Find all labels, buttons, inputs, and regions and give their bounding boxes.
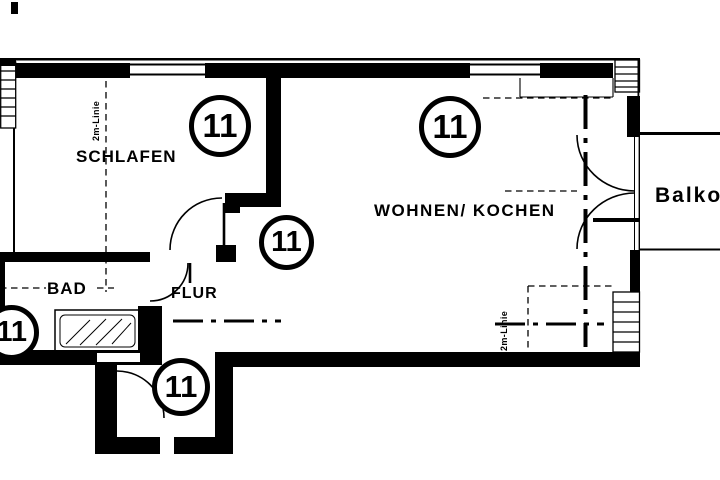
room-label-flur: FLUR [171,285,218,303]
floorplan-linework [0,0,720,480]
room-label-wohnen-kochen: WOHNEN/ KOCHEN [374,201,556,221]
unit-number-badge: 11 [189,95,251,157]
scan-artifact [11,2,18,14]
top-right-window-hatch [615,60,640,92]
schlafen-door [170,198,224,250]
unit-number-badge: 11 [419,96,481,158]
unit-number: 11 [165,369,198,405]
two-meter-line-note-right: 2m-Linie [499,311,509,351]
left-window-hatch [0,62,16,128]
unit-number: 11 [0,316,27,349]
unit-number-badge: 11 [259,215,314,270]
room-label-schlafen: SCHLAFEN [76,147,177,167]
right-window-hatch [613,292,640,352]
two-meter-line-note-left: 2m-Linie [91,101,101,141]
bathtub [55,310,140,352]
kitchen-counter [520,78,613,97]
floorplan: SCHLAFEN WOHNEN/ KOCHEN BAD FLUR Balkon … [0,0,720,480]
room-label-bad: BAD [47,279,87,299]
room-label-balkon: Balkon [655,184,720,208]
unit-number: 11 [203,107,238,145]
unit-number: 11 [433,108,468,146]
unit-number-badge: 11 [152,358,210,416]
unit-number: 11 [271,226,302,259]
